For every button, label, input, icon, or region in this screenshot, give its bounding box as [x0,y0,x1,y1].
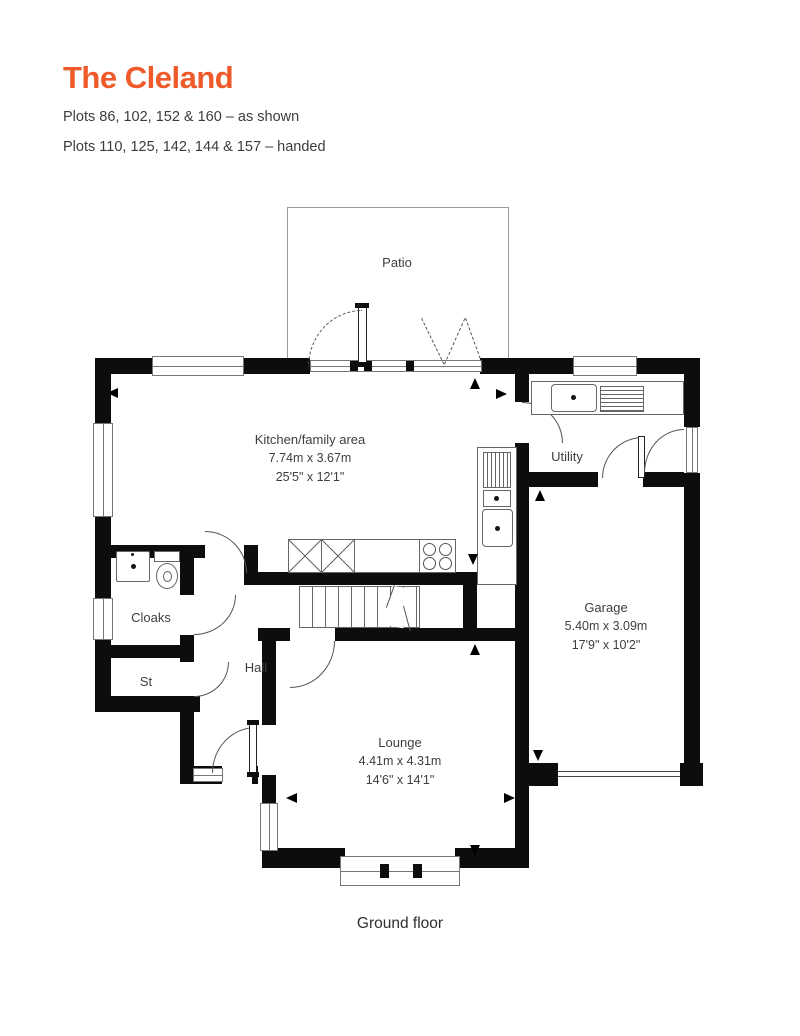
wall [258,628,290,641]
kitchen-name: Kitchen/family area [255,430,366,449]
hob-ring [423,543,436,556]
garage-metric: 5.40m x 3.09m [565,617,648,636]
hob-ring [439,543,452,556]
store-door-arc [194,662,229,697]
garage-door-arc [602,437,643,478]
hob-ring [423,557,436,570]
wall [515,443,529,868]
cloaks-window [93,598,113,640]
bay-mullion [380,864,389,878]
patio-label: Patio [382,253,412,272]
bay-mullion [413,864,422,878]
toilet-bowl-inner [163,571,172,582]
lounge-metric: 4.41m x 4.31m [359,752,442,771]
kitchen-unit [321,539,355,573]
wall [95,358,111,712]
direction-arrow-right [504,793,515,803]
floor-caption: Ground floor [357,915,443,933]
direction-arrow-up [470,644,480,655]
utility-tap [571,395,576,400]
basin-plug [131,564,136,569]
utility-label: Utility [551,447,583,466]
page-title: The Cleland [63,60,233,96]
front-door-hinge [247,720,259,725]
direction-arrow-left [107,388,118,398]
plots-handed-text: Plots 110, 125, 142, 144 & 157 – handed [63,139,326,155]
side-door-leaf [686,427,698,473]
wall [515,358,529,402]
utility-drainer [600,386,644,412]
direction-arrow-right [496,389,507,399]
wall [244,358,310,374]
patio-door-block [406,361,414,371]
direction-arrow-up [470,378,480,389]
utility-window [573,356,637,376]
hall-label: Hall [245,658,267,677]
wall [262,641,276,725]
wall [335,628,477,641]
lounge-side-window [260,803,278,851]
wall [455,848,529,868]
garage-name: Garage [565,598,648,617]
patio-door-hinge [355,303,369,308]
kitchen-label: Kitchen/family area 7.74m x 3.67m 25'5" … [255,430,366,487]
side-door-arc [644,429,684,473]
wall [262,848,345,868]
garage-vehicle-door [558,771,680,777]
wall [529,472,598,487]
front-door-leaf [249,724,257,774]
cloaks-label: Cloaks [131,608,171,627]
cloaks-door-arc [194,595,236,635]
direction-arrow-up [535,490,545,501]
hob-ring [439,557,452,570]
wall [111,645,194,658]
wall [529,763,558,786]
store-label: St [140,672,152,691]
sink-plug [495,526,500,531]
lounge-door-arc [290,641,335,688]
garage-label: Garage 5.40m x 3.09m 17'9" x 10'2" [565,598,648,655]
kitchen-side-window [93,423,113,517]
kitchen-window [152,356,244,376]
garage-imperial: 17'9" x 10'2" [565,636,648,655]
kitchen-unit [288,539,322,573]
lounge-bay-window [340,856,460,886]
direction-arrow-down [470,845,480,856]
kitchen-metric: 7.74m x 3.67m [255,449,366,468]
lounge-label: Lounge 4.41m x 4.31m 14'6" x 14'1" [359,733,442,790]
direction-arrow-left [286,793,297,803]
direction-arrow-down [468,554,478,565]
plots-as-shown-text: Plots 86, 102, 152 & 160 – as shown [63,109,299,125]
floorplan-sheet: The Cleland Plots 86, 102, 152 & 160 – a… [0,0,800,1036]
lounge-name: Lounge [359,733,442,752]
wall [637,358,700,374]
front-door-hinge [247,772,259,777]
toilet-cistern [154,551,180,562]
direction-arrow-down [533,750,543,761]
kitchen-imperial: 25'5" x 12'1" [255,468,366,487]
kitchen-door-arc [205,531,247,573]
sink-tap [494,496,499,501]
basin-tap [131,553,134,556]
wall [643,472,700,487]
lounge-imperial: 14'6" x 14'1" [359,771,442,790]
sink-drainer [483,452,511,488]
